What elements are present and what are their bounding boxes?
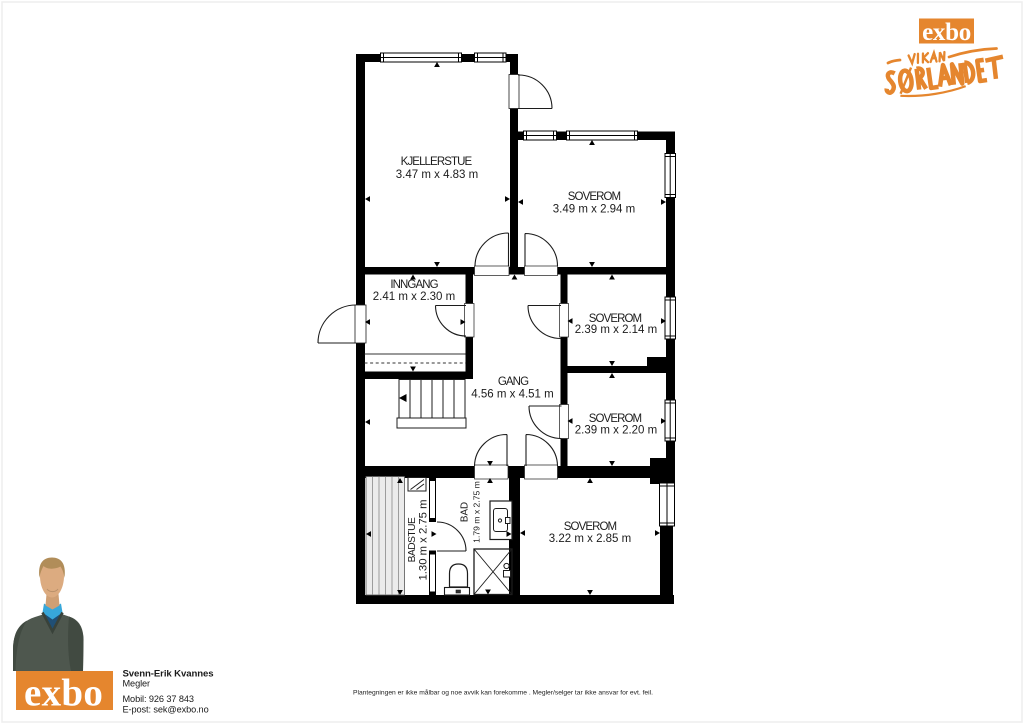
svg-text:SOVEROM: SOVEROM [589, 413, 642, 425]
svg-text:exbo: exbo [922, 19, 971, 46]
svg-text:3.49 m x 2.94 m: 3.49 m x 2.94 m [553, 204, 635, 216]
svg-text:Mobil: 926 37 843: Mobil: 926 37 843 [123, 694, 194, 704]
svg-text:3.47 m x 4.83 m: 3.47 m x 4.83 m [396, 169, 478, 181]
svg-text:Megler: Megler [123, 679, 151, 689]
svg-text:E-post: sek@exbo.no: E-post: sek@exbo.no [123, 705, 209, 715]
svg-text:2.39 m x 2.14 m: 2.39 m x 2.14 m [575, 324, 657, 336]
svg-text:SOVEROM: SOVEROM [568, 191, 621, 203]
svg-text:1.79 m x 2.75 m: 1.79 m x 2.75 m [472, 481, 482, 543]
svg-text:2.39 m x 2.20 m: 2.39 m x 2.20 m [575, 425, 657, 437]
svg-text:exbo: exbo [24, 672, 103, 715]
svg-text:KJELLERSTUE: KJELLERSTUE [401, 156, 473, 168]
svg-text:BADSTUE: BADSTUE [407, 517, 418, 562]
svg-text:1.30 m x 2.75 m: 1.30 m x 2.75 m [418, 500, 430, 581]
svg-text:INNGANG: INNGANG [390, 279, 438, 291]
svg-text:BAD: BAD [460, 502, 471, 522]
svg-text:4.56 m x 4.51 m: 4.56 m x 4.51 m [471, 389, 553, 401]
svg-text:SOVEROM: SOVEROM [564, 521, 617, 533]
svg-text:Plantegningen er ikke målbar o: Plantegningen er ikke målbar og noe avvi… [353, 689, 653, 697]
svg-text:GANG: GANG [498, 376, 529, 388]
svg-text:3.22 m x 2.85 m: 3.22 m x 2.85 m [549, 533, 631, 545]
svg-text:2.41 m x 2.30 m: 2.41 m x 2.30 m [373, 291, 455, 303]
